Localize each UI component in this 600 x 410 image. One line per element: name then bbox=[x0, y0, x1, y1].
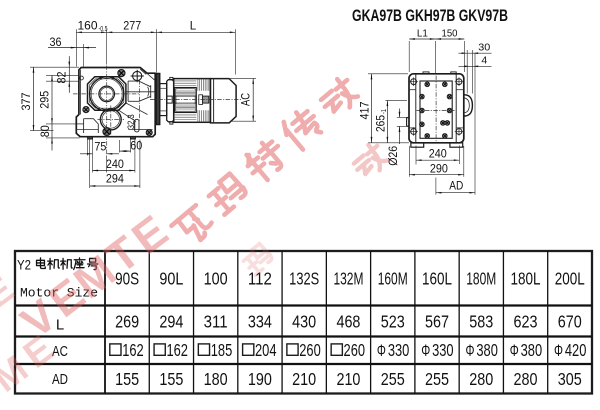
svg-text:420: 420 bbox=[565, 340, 587, 360]
svg-text:240: 240 bbox=[429, 149, 447, 161]
svg-text:-1: -1 bbox=[381, 109, 388, 114]
svg-text:160: 160 bbox=[78, 20, 98, 32]
svg-text:623: 623 bbox=[514, 312, 538, 332]
svg-text:L: L bbox=[190, 21, 197, 33]
svg-text:377: 377 bbox=[21, 93, 33, 111]
svg-text:80: 80 bbox=[40, 125, 52, 137]
svg-text:567: 567 bbox=[425, 312, 449, 332]
svg-text:260: 260 bbox=[299, 340, 321, 360]
svg-text:210: 210 bbox=[292, 369, 316, 389]
svg-text:255: 255 bbox=[381, 369, 405, 389]
svg-text:295: 295 bbox=[40, 91, 52, 109]
svg-text:180L: 180L bbox=[511, 269, 541, 289]
svg-text:280: 280 bbox=[514, 369, 538, 389]
svg-text:190: 190 bbox=[248, 369, 272, 389]
svg-text:204: 204 bbox=[255, 340, 277, 360]
svg-text:523: 523 bbox=[381, 312, 405, 332]
svg-text:311: 311 bbox=[204, 312, 228, 332]
svg-text:162: 162 bbox=[166, 340, 188, 360]
svg-text:AC: AC bbox=[241, 93, 253, 106]
svg-text:AD: AD bbox=[52, 371, 68, 388]
svg-text:240: 240 bbox=[106, 159, 124, 171]
svg-text:4: 4 bbox=[481, 54, 487, 66]
svg-text:294: 294 bbox=[159, 312, 183, 332]
svg-text:468: 468 bbox=[336, 312, 360, 332]
svg-text:255: 255 bbox=[425, 369, 449, 389]
svg-text:269: 269 bbox=[115, 312, 139, 332]
svg-text:Ø26: Ø26 bbox=[388, 146, 400, 166]
svg-text:330: 330 bbox=[432, 340, 454, 360]
svg-text:260: 260 bbox=[344, 340, 366, 360]
svg-text:162: 162 bbox=[122, 340, 144, 360]
svg-text:277: 277 bbox=[123, 21, 141, 33]
svg-text:330: 330 bbox=[388, 340, 410, 360]
svg-text:150: 150 bbox=[442, 27, 458, 39]
svg-text:380: 380 bbox=[476, 340, 498, 360]
svg-text:82: 82 bbox=[56, 72, 68, 84]
svg-text:290: 290 bbox=[430, 164, 448, 176]
svg-text:Φ: Φ bbox=[421, 341, 430, 360]
svg-text:GKA97B GKH97B GKV97B: GKA97B GKH97B GKV97B bbox=[352, 7, 508, 25]
svg-text:30: 30 bbox=[478, 42, 490, 54]
svg-text:Φ: Φ bbox=[510, 341, 519, 360]
svg-text:280: 280 bbox=[469, 369, 493, 389]
svg-text:60: 60 bbox=[130, 140, 142, 152]
svg-text:583: 583 bbox=[469, 312, 493, 332]
svg-text:132M: 132M bbox=[333, 269, 363, 289]
svg-text:36: 36 bbox=[50, 37, 62, 49]
svg-text:160L: 160L bbox=[422, 269, 452, 289]
svg-text:75: 75 bbox=[94, 142, 106, 154]
svg-text:100: 100 bbox=[204, 269, 228, 289]
svg-text:Φ: Φ bbox=[554, 341, 563, 360]
svg-text:Y2: Y2 bbox=[17, 257, 31, 273]
svg-text:417: 417 bbox=[360, 102, 372, 120]
svg-text:160M: 160M bbox=[378, 269, 408, 289]
svg-text:294: 294 bbox=[106, 174, 125, 186]
svg-text:305: 305 bbox=[558, 369, 582, 389]
svg-text:200L: 200L bbox=[555, 269, 585, 289]
svg-text:L1: L1 bbox=[417, 27, 428, 39]
svg-text:180: 180 bbox=[204, 369, 228, 389]
svg-text:265: 265 bbox=[375, 115, 387, 132]
svg-text:334: 334 bbox=[248, 312, 272, 332]
svg-text:155: 155 bbox=[115, 369, 139, 389]
svg-text:185: 185 bbox=[211, 340, 233, 360]
svg-text:AD: AD bbox=[449, 180, 463, 192]
svg-text:-0.5: -0.5 bbox=[99, 26, 108, 33]
svg-text:32.3: 32.3 bbox=[126, 114, 137, 129]
svg-text:670: 670 bbox=[558, 312, 582, 332]
svg-text:155: 155 bbox=[159, 369, 183, 389]
svg-text:90L: 90L bbox=[159, 269, 183, 289]
svg-text:380: 380 bbox=[521, 340, 543, 360]
svg-text:Φ: Φ bbox=[465, 341, 474, 360]
svg-text:Φ: Φ bbox=[377, 341, 386, 360]
svg-text:430: 430 bbox=[292, 312, 316, 332]
svg-text:180M: 180M bbox=[466, 269, 496, 289]
svg-text:210: 210 bbox=[336, 369, 360, 389]
svg-text:132S: 132S bbox=[289, 269, 319, 289]
